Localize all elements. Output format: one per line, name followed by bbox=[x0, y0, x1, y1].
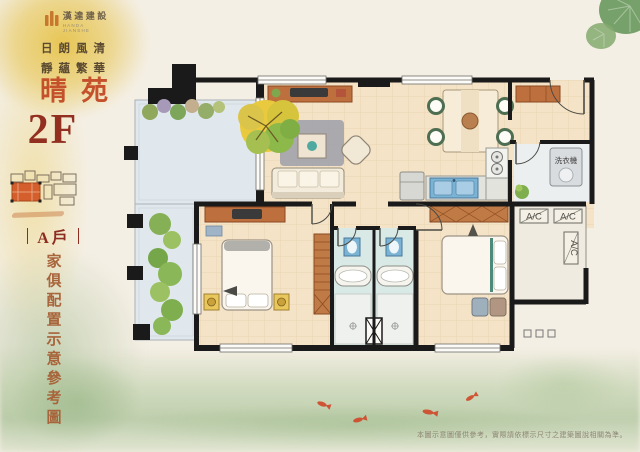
key-plan bbox=[8, 169, 80, 209]
ac-box-3: A/C bbox=[564, 232, 579, 264]
ac-box-2: A/C bbox=[554, 209, 582, 223]
disclaimer: 本圖示意圖僅供參考，實際請依標示尺寸之建築圖說相關為準。 bbox=[417, 430, 627, 440]
furniture-caption: 家俱配置示意參考圖 bbox=[43, 253, 64, 429]
building-logo-icon bbox=[44, 9, 59, 28]
project-name: 晴苑 bbox=[40, 69, 122, 108]
coffee-table bbox=[298, 134, 326, 158]
caption-wrap: 家俱配置示意參考圖 bbox=[0, 253, 106, 429]
dresser-1 bbox=[205, 207, 285, 222]
dining-table bbox=[443, 90, 498, 152]
unit-bar-left bbox=[27, 228, 29, 244]
developer-name: 漢達建設 bbox=[63, 9, 110, 22]
tv-console bbox=[268, 86, 352, 102]
ac-label-3: A/C bbox=[568, 240, 579, 256]
lotus-leaf-decoration bbox=[586, 0, 640, 60]
washing-machine: 洗衣機 bbox=[550, 148, 582, 186]
tv bbox=[290, 88, 328, 97]
fridge bbox=[400, 172, 424, 200]
washing-machine-label: 洗衣機 bbox=[555, 155, 578, 165]
unit-bar-right bbox=[78, 228, 80, 244]
developer-name-en: HANDA JIANSHE bbox=[63, 23, 110, 33]
ac-label-2: A/C bbox=[560, 212, 576, 223]
bed-1 bbox=[222, 240, 272, 310]
stove bbox=[486, 148, 508, 178]
corridor-floor bbox=[332, 204, 416, 228]
floor-plan: 洗衣機 A/C A/C A/C bbox=[120, 64, 600, 374]
bench-1 bbox=[206, 226, 222, 236]
sketch-flourish bbox=[11, 211, 64, 218]
vent-squares bbox=[524, 330, 555, 337]
sofa bbox=[272, 168, 344, 198]
wardrobe-2 bbox=[430, 206, 508, 222]
unit-label: A戶 bbox=[37, 224, 71, 248]
ac-box-1: A/C bbox=[520, 209, 548, 223]
floor-label: 2F bbox=[0, 106, 106, 154]
unit-row: A戶 bbox=[0, 224, 106, 248]
floorplan-poster: 漢達建設 HANDA JIANSHE 日朗風清 靜蘊繁華 晴苑 2F bbox=[0, 0, 640, 452]
terrace-tree bbox=[238, 100, 300, 154]
kitchen-sink bbox=[430, 178, 478, 198]
developer-logo: 漢達建設 HANDA JIANSHE bbox=[44, 9, 110, 33]
sidebar: 漢達建設 HANDA JIANSHE 日朗風清 靜蘊繁華 晴苑 2F bbox=[0, 0, 110, 452]
ac-label-1: A/C bbox=[526, 212, 542, 223]
wardrobe-1 bbox=[314, 234, 331, 314]
tagline-line-1: 日朗風清 bbox=[41, 39, 111, 59]
